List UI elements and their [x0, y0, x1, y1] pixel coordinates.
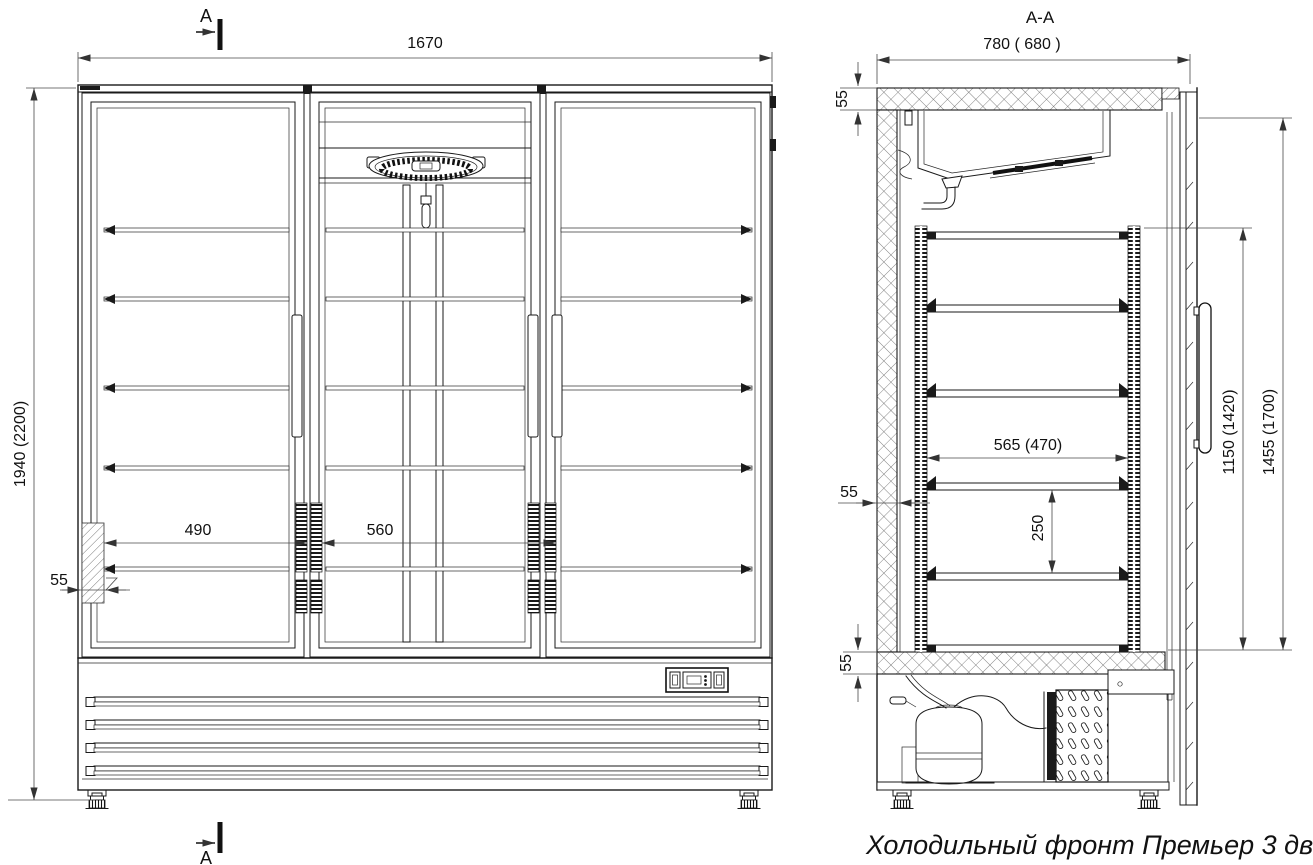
condenser-fan-shroud — [1047, 692, 1056, 780]
top-hinge-left — [80, 86, 100, 90]
section-view: A-A — [834, 8, 1292, 809]
dim-total-depth: 780 ( 680 ) — [983, 36, 1060, 53]
door-frame-hatch-ticks — [1186, 142, 1193, 790]
adjustable-foot — [1138, 790, 1160, 809]
top-insulation-panel — [877, 88, 1162, 110]
door-section — [1167, 88, 1211, 805]
technical-drawing-page: A A — [0, 0, 1313, 865]
door-handle-section[interactable] — [1199, 303, 1211, 453]
evaporator-tray — [898, 111, 1110, 209]
section-cut-marker-top: A — [196, 6, 220, 50]
louver — [86, 697, 768, 707]
dim-door-opening-height: 1455 (1700) — [1261, 389, 1278, 475]
dim-shelf-spacing: 250 — [1030, 515, 1047, 542]
louver — [86, 743, 768, 753]
dim-shelf-depth: 565 (470) — [994, 437, 1063, 454]
section-cut-marker-bottom: A — [196, 822, 220, 865]
louver — [86, 766, 768, 776]
adjustable-foot — [891, 790, 913, 809]
wall-section-hatch — [82, 523, 104, 603]
cut-letter-bottom: A — [200, 848, 212, 865]
dim-left-bay-width: 490 — [185, 522, 212, 539]
dim-side-wall-thickness: 55 — [840, 484, 858, 501]
drain-pipe — [922, 187, 955, 209]
mullion-left — [403, 185, 410, 642]
rear-wall-insulation — [877, 110, 897, 652]
cut-letter-top: A — [200, 6, 212, 26]
temperature-controller[interactable] — [666, 668, 728, 692]
dim-front-wall-thickness: 55 — [50, 572, 68, 589]
drawing-canvas: A A — [0, 0, 1313, 865]
adjustable-foot — [86, 790, 108, 809]
controller-display — [687, 676, 701, 684]
drawing-caption: Холодильный фронт Премьер 3 двери. — [865, 830, 1313, 860]
door-top-frame-hatch — [1162, 88, 1179, 99]
mullion-right — [436, 185, 443, 642]
front-door-right — [546, 93, 770, 657]
door-handle-center[interactable] — [528, 315, 538, 437]
adjustable-foot — [738, 790, 760, 809]
front-door-left — [82, 93, 304, 657]
dim-inner-height: 1150 (1420) — [1221, 389, 1238, 474]
evaporator-fan — [367, 152, 485, 180]
door-handle-left[interactable] — [292, 315, 302, 437]
dim-front-total-width: 1670 — [407, 35, 443, 52]
door-handle-right[interactable] — [552, 315, 562, 437]
dim-bottom-panel-thickness: 55 — [838, 654, 855, 672]
condenser-coil — [1056, 690, 1108, 782]
condensing-unit — [877, 670, 1174, 790]
front-view: A A — [8, 6, 776, 865]
dim-top-panel-thickness: 55 — [834, 90, 851, 108]
section-view-label: A-A — [1026, 8, 1055, 27]
electrical-box — [1108, 670, 1174, 694]
dim-front-total-height: 1940 (2200) — [12, 401, 29, 487]
compressor — [902, 705, 994, 784]
louver — [86, 720, 768, 730]
front-door-center — [310, 93, 540, 657]
dim-center-bay-width: 560 — [367, 522, 394, 539]
